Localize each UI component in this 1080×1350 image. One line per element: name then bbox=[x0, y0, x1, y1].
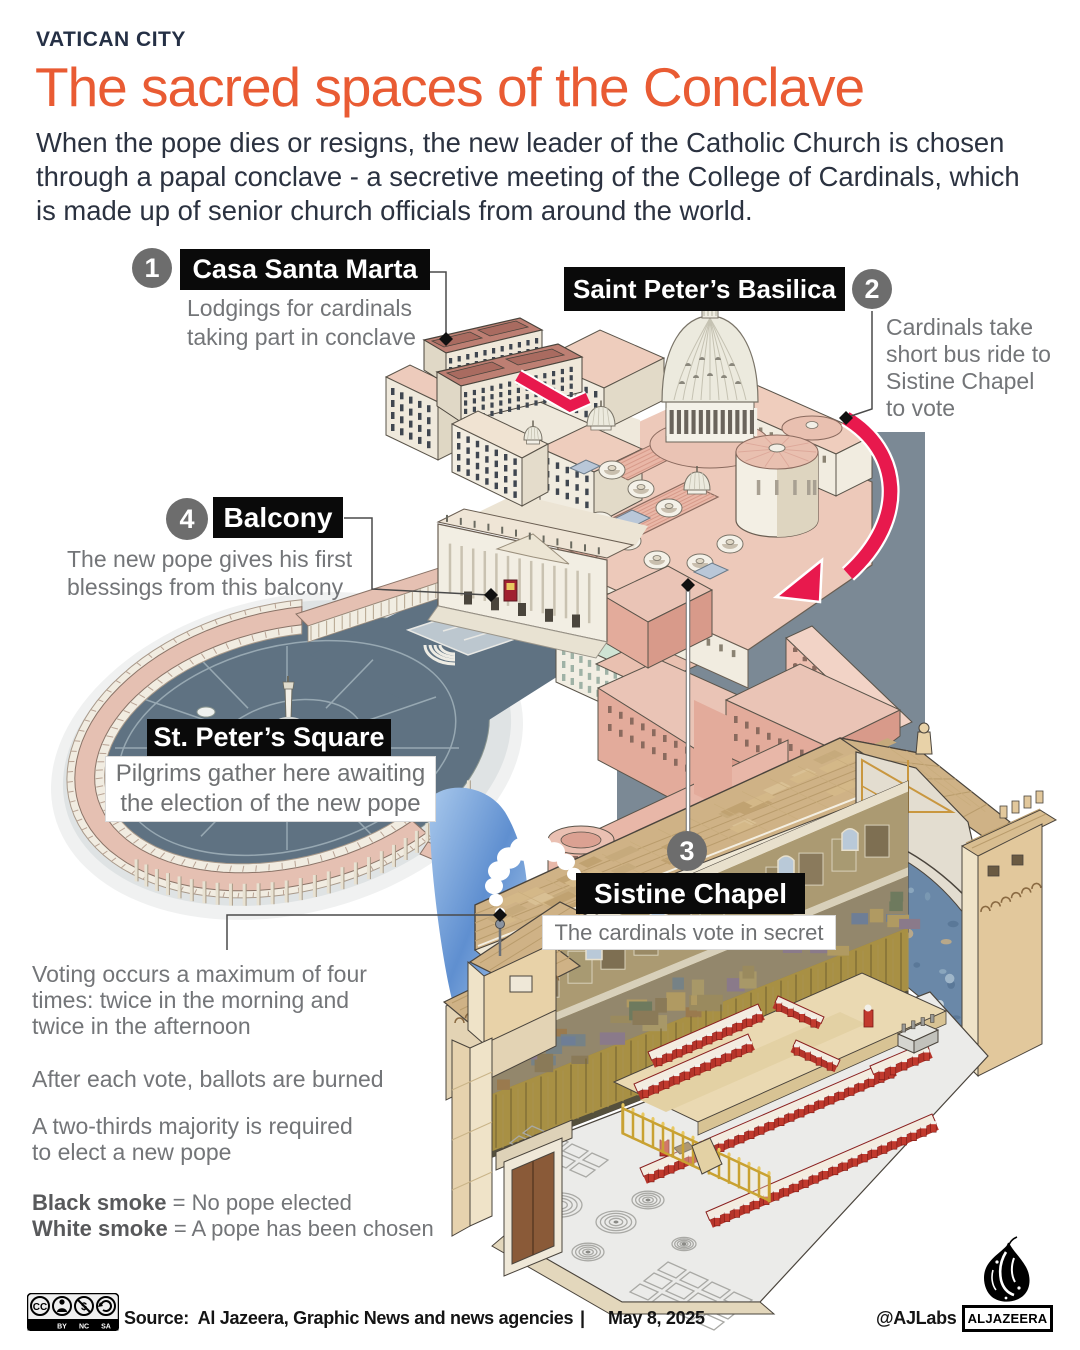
svg-text:CC: CC bbox=[33, 1302, 47, 1313]
svg-text:NC: NC bbox=[79, 1324, 89, 1331]
svg-text:BY: BY bbox=[57, 1324, 67, 1331]
svg-text:SA: SA bbox=[101, 1324, 111, 1331]
